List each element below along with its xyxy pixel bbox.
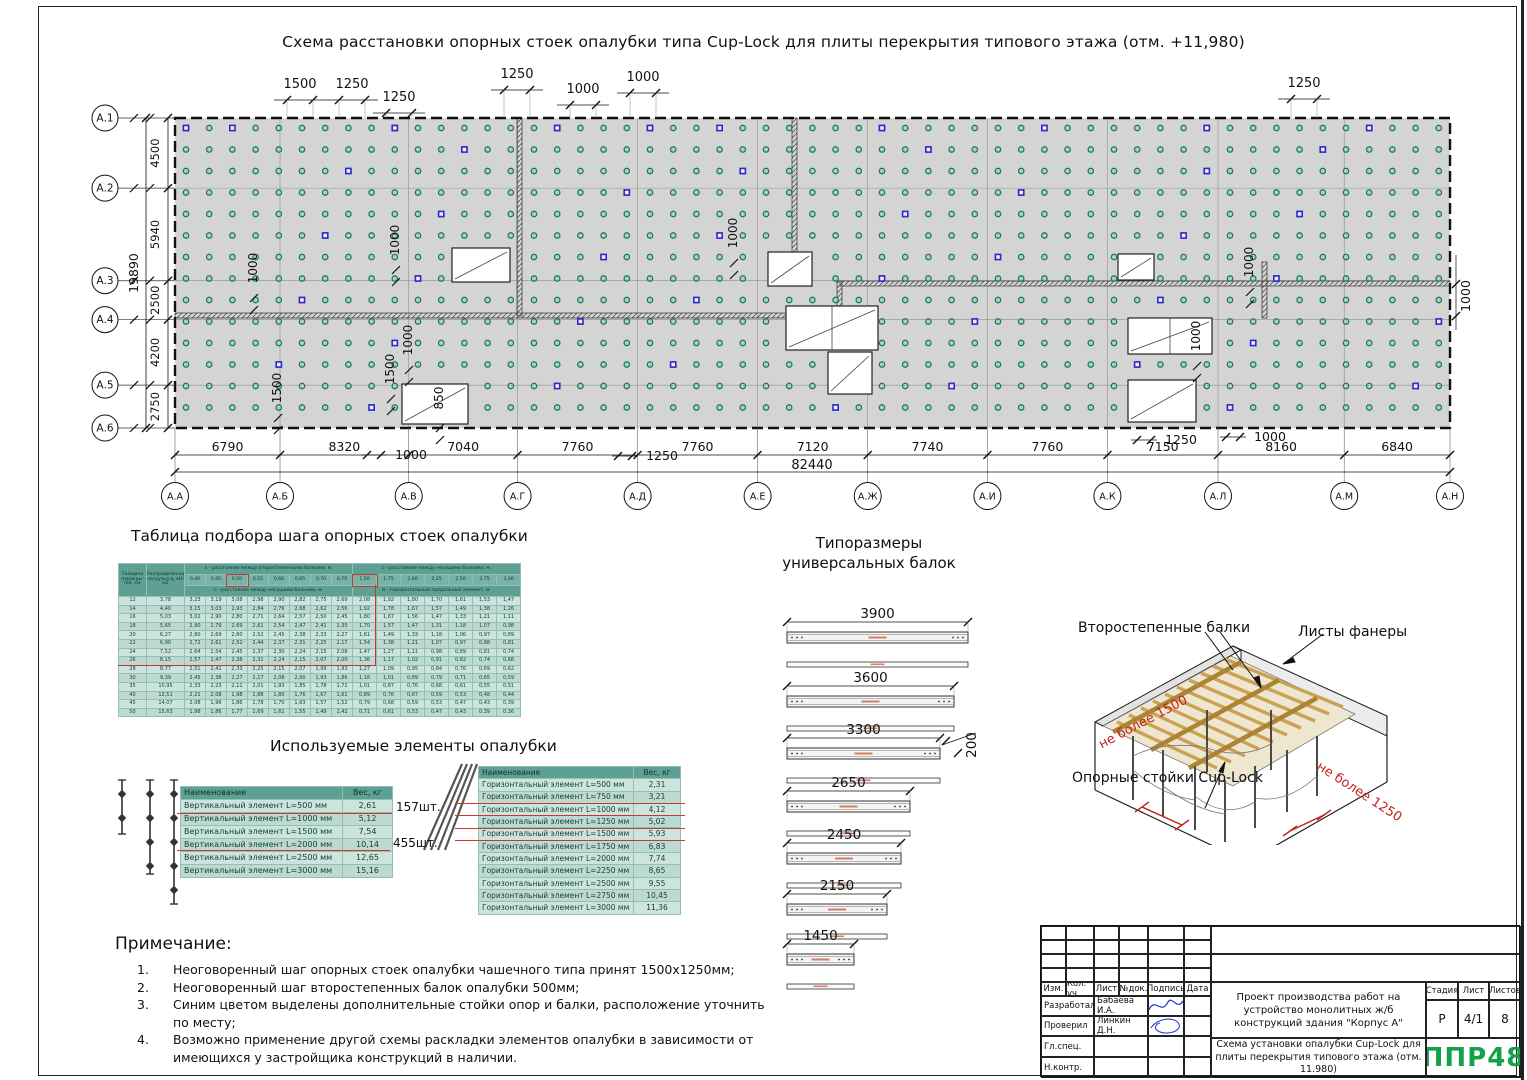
- support-dot: [1320, 362, 1325, 367]
- support-dot: [647, 340, 652, 345]
- support-dot: [276, 190, 281, 195]
- extra-support-marker: [369, 405, 374, 410]
- support-dot: [462, 211, 467, 216]
- support-dot: [903, 383, 908, 388]
- beam-marking: [840, 806, 858, 808]
- tb-sheets-label: Листов: [1489, 982, 1521, 1000]
- support-dot: [1181, 254, 1186, 259]
- support-dot: [601, 362, 606, 367]
- support-dot: [1343, 340, 1348, 345]
- svg-text:1500: 1500: [383, 354, 397, 385]
- support-dot: [183, 190, 188, 195]
- svg-text:1500: 1500: [283, 77, 316, 92]
- support-dot: [1204, 383, 1209, 388]
- revision-cell: [1184, 926, 1211, 940]
- support-dot: [439, 147, 444, 152]
- support-dot: [1135, 190, 1140, 195]
- support-dot: [717, 297, 722, 302]
- support-dot: [763, 340, 768, 345]
- revision-cell: [1184, 954, 1211, 968]
- support-dot: [555, 340, 560, 345]
- support-dot: [949, 147, 954, 152]
- support-dot: [439, 125, 444, 130]
- support-dot: [1251, 147, 1256, 152]
- support-dot: [1367, 297, 1372, 302]
- support-dot: [253, 125, 258, 130]
- support-dot: [926, 125, 931, 130]
- support-dot: [624, 340, 629, 345]
- support-dot: [1065, 190, 1070, 195]
- support-dot: [369, 211, 374, 216]
- tb-stage-label: Стадия: [1426, 982, 1458, 1000]
- support-dot: [671, 276, 676, 281]
- vertical-elements-table: НаименованиеВес, кгВертикальный элемент …: [180, 786, 393, 878]
- extra-support-marker: [647, 125, 652, 130]
- support-dot: [763, 405, 768, 410]
- support-dot: [740, 254, 745, 259]
- support-dot: [230, 147, 235, 152]
- support-dot: [276, 297, 281, 302]
- support-dot: [1181, 276, 1186, 281]
- support-dot: [1413, 147, 1418, 152]
- support-dot: [1042, 297, 1047, 302]
- support-dot: [856, 254, 861, 259]
- support-dot: [694, 276, 699, 281]
- support-dot: [230, 297, 235, 302]
- notes-block: Примечание: 1.Неоговоренный шаг опорных …: [115, 934, 775, 1066]
- label-posts: Опорные стойки Cup-Lock: [1072, 770, 1263, 786]
- support-dot: [369, 276, 374, 281]
- svg-text:2750: 2750: [148, 392, 162, 421]
- support-dot: [694, 125, 699, 130]
- support-dot: [694, 383, 699, 388]
- support-dot: [531, 211, 536, 216]
- extra-support-marker: [671, 362, 676, 367]
- support-dot: [995, 190, 1000, 195]
- support-dot: [926, 254, 931, 259]
- label-plywood: Листы фанеры: [1298, 624, 1407, 640]
- support-dot: [787, 383, 792, 388]
- support-dot: [647, 190, 652, 195]
- note-text: Неоговоренный шаг опорных стоек опалубки…: [173, 961, 775, 979]
- support-dot: [485, 405, 490, 410]
- step-table-header: Толщина перекры- тия, см.: [119, 564, 147, 597]
- svg-text:3900: 3900: [860, 606, 894, 622]
- support-dot: [1367, 147, 1372, 152]
- svg-text:А.Д: А.Д: [629, 492, 646, 503]
- support-dot: [1204, 276, 1209, 281]
- svg-text:850: 850: [432, 387, 446, 410]
- svg-text:1000: 1000: [1242, 247, 1256, 278]
- support-dot: [1019, 147, 1024, 152]
- step-table-header: 0,75: [332, 575, 353, 586]
- support-dot: [207, 254, 212, 259]
- support-dot: [763, 190, 768, 195]
- step-selection-table: Толщина перекры- тия, см.Распределенная …: [118, 563, 521, 717]
- support-dot: [787, 125, 792, 130]
- support-dot: [1390, 233, 1395, 238]
- support-dot: [1367, 276, 1372, 281]
- support-dot: [1297, 233, 1302, 238]
- support-dot: [1065, 383, 1070, 388]
- support-dot: [578, 340, 583, 345]
- support-dot: [1343, 362, 1348, 367]
- support-dot: [810, 297, 815, 302]
- svg-text:А.А: А.А: [167, 492, 184, 503]
- support-dot: [787, 211, 792, 216]
- support-dot: [995, 362, 1000, 367]
- support-dot: [392, 168, 397, 173]
- support-dot: [647, 211, 652, 216]
- svg-text:1000: 1000: [246, 253, 260, 284]
- support-dot: [879, 233, 884, 238]
- support-dot: [531, 297, 536, 302]
- support-dot: [207, 190, 212, 195]
- support-dot: [439, 168, 444, 173]
- support-dot: [578, 297, 583, 302]
- extra-support-marker: [949, 383, 954, 388]
- support-dot: [1390, 383, 1395, 388]
- support-dot: [485, 168, 490, 173]
- support-dot: [903, 340, 908, 345]
- support-dot: [1065, 254, 1070, 259]
- support-dot: [1343, 405, 1348, 410]
- support-dot: [323, 211, 328, 216]
- svg-text:3300: 3300: [846, 722, 880, 738]
- support-dot: [1413, 405, 1418, 410]
- extra-support-marker: [1274, 276, 1279, 281]
- slab-opening: [1118, 254, 1154, 280]
- support-dot: [253, 190, 258, 195]
- note-number: 1.: [115, 961, 173, 979]
- support-dot: [1181, 147, 1186, 152]
- support-dot: [299, 233, 304, 238]
- support-dot: [1135, 147, 1140, 152]
- note-item: 2.Неоговоренный шаг второстепенных балок…: [115, 979, 775, 997]
- svg-text:4500: 4500: [148, 138, 162, 167]
- wall-hatch: [175, 313, 840, 318]
- support-dot: [810, 168, 815, 173]
- revision-cell: [1119, 940, 1148, 954]
- support-dot: [1343, 319, 1348, 324]
- support-dot: [1297, 405, 1302, 410]
- support-dot: [1297, 168, 1302, 173]
- step-table: Толщина перекры- тия, см.Распределенная …: [118, 563, 520, 718]
- support-dot: [1042, 254, 1047, 259]
- element-row: Горизонтальный элемент L=1250 мм5,02: [479, 816, 681, 828]
- support-dot: [183, 211, 188, 216]
- support-dot: [462, 362, 467, 367]
- extra-support-marker: [1158, 297, 1163, 302]
- tb-date-cell: [1184, 1036, 1211, 1057]
- support-dot: [1204, 147, 1209, 152]
- support-dot: [1227, 233, 1232, 238]
- support-dot: [1111, 276, 1116, 281]
- support-dot: [856, 168, 861, 173]
- support-dot: [1274, 254, 1279, 259]
- beam-size-item: 3900: [783, 606, 972, 667]
- support-dot: [1413, 125, 1418, 130]
- support-dot: [740, 340, 745, 345]
- support-dot: [323, 276, 328, 281]
- tb-person: Бабаева И.А.: [1094, 996, 1148, 1016]
- step-table-header: 0,60: [269, 575, 290, 586]
- support-dot: [369, 190, 374, 195]
- support-dot: [671, 297, 676, 302]
- extra-support-marker: [1413, 383, 1418, 388]
- support-dot: [647, 362, 652, 367]
- support-dot: [323, 297, 328, 302]
- support-dot: [879, 211, 884, 216]
- support-dot: [462, 190, 467, 195]
- support-dot: [253, 405, 258, 410]
- svg-text:1000: 1000: [388, 225, 402, 256]
- support-dot: [230, 190, 235, 195]
- support-dot: [508, 168, 513, 173]
- support-dot: [995, 147, 1000, 152]
- support-dot: [1135, 233, 1140, 238]
- step-table-header: 0,70: [311, 575, 332, 586]
- note-number: 4.: [115, 1031, 173, 1066]
- support-dot: [740, 383, 745, 388]
- support-dot: [207, 168, 212, 173]
- svg-text:1250: 1250: [646, 448, 678, 463]
- support-dot: [995, 233, 1000, 238]
- svg-text:1000: 1000: [1254, 429, 1286, 444]
- support-dot: [694, 147, 699, 152]
- support-dot: [1343, 211, 1348, 216]
- extra-support-marker: [439, 211, 444, 216]
- support-dot: [879, 405, 884, 410]
- support-dot: [508, 319, 513, 324]
- support-dot: [555, 147, 560, 152]
- support-dot: [1320, 254, 1325, 259]
- support-dot: [1251, 405, 1256, 410]
- support-dot: [601, 340, 606, 345]
- support-dot: [949, 319, 954, 324]
- extra-support-marker: [833, 405, 838, 410]
- support-dot: [323, 383, 328, 388]
- element-row: Горизонтальный элемент L=2500 мм9,55: [479, 877, 681, 889]
- support-dot: [810, 362, 815, 367]
- support-dot: [624, 211, 629, 216]
- extra-support-marker: [1204, 125, 1209, 130]
- support-dot: [647, 319, 652, 324]
- support-dot: [415, 233, 420, 238]
- support-dot: [253, 383, 258, 388]
- support-dot: [856, 211, 861, 216]
- svg-text:А.К: А.К: [1099, 492, 1116, 503]
- support-dot: [415, 147, 420, 152]
- support-dot: [230, 383, 235, 388]
- support-dot: [531, 254, 536, 259]
- support-dot: [183, 147, 188, 152]
- support-dot: [717, 168, 722, 173]
- support-dot: [323, 254, 328, 259]
- support-dot: [207, 319, 212, 324]
- support-dot: [1413, 340, 1418, 345]
- extra-support-marker: [555, 125, 560, 130]
- svg-text:1000: 1000: [1189, 321, 1203, 352]
- support-dot: [1065, 125, 1070, 130]
- support-dot: [903, 190, 908, 195]
- support-dot: [462, 168, 467, 173]
- support-dot: [763, 297, 768, 302]
- support-dot: [392, 319, 397, 324]
- support-dot: [1413, 190, 1418, 195]
- support-dot: [1111, 319, 1116, 324]
- support-dot: [230, 233, 235, 238]
- support-dot: [717, 405, 722, 410]
- support-dot: [299, 319, 304, 324]
- support-dot: [903, 319, 908, 324]
- support-dot: [1274, 211, 1279, 216]
- extra-support-marker: [903, 211, 908, 216]
- extra-support-marker: [276, 362, 281, 367]
- extra-support-marker: [462, 147, 467, 152]
- support-dot: [949, 211, 954, 216]
- extra-support-marker: [879, 125, 884, 130]
- support-dot: [1320, 383, 1325, 388]
- support-dot: [1436, 233, 1441, 238]
- tb-person: [1094, 1057, 1148, 1078]
- support-dot: [1227, 254, 1232, 259]
- step-table-row: 4514,072,081,961,861,781,701,631,571,520…: [119, 700, 521, 709]
- support-dot: [601, 211, 606, 216]
- support-dot: [1065, 211, 1070, 216]
- tb-band: [1211, 926, 1521, 954]
- tb-signature-cell: [1148, 1057, 1184, 1078]
- support-dot: [879, 362, 884, 367]
- note-text: Неоговоренный шаг второстепенных балок о…: [173, 979, 775, 997]
- support-dot: [346, 297, 351, 302]
- support-dot: [183, 233, 188, 238]
- support-dot: [1065, 340, 1070, 345]
- support-dot: [346, 340, 351, 345]
- support-dot: [694, 168, 699, 173]
- support-dot: [624, 362, 629, 367]
- red-highlight: [375, 585, 376, 665]
- support-dot: [1019, 383, 1024, 388]
- revision-cell: [1119, 968, 1148, 982]
- support-dot: [810, 405, 815, 410]
- support-dot: [1297, 254, 1302, 259]
- support-dot: [1181, 211, 1186, 216]
- element-row: Горизонтальный элемент L=1000 мм4,12: [479, 803, 681, 815]
- support-dot: [1019, 405, 1024, 410]
- extra-support-marker: [1042, 125, 1047, 130]
- support-dot: [624, 383, 629, 388]
- support-dot: [276, 147, 281, 152]
- support-dot: [1367, 168, 1372, 173]
- support-dot: [183, 254, 188, 259]
- support-dot: [601, 405, 606, 410]
- support-dot: [276, 168, 281, 173]
- support-dot: [1158, 168, 1163, 173]
- count-label-1: 157шт.: [396, 800, 441, 814]
- tb-sheets-value: 8: [1489, 1000, 1521, 1038]
- support-dot: [1158, 125, 1163, 130]
- support-dot: [763, 362, 768, 367]
- support-dot: [230, 319, 235, 324]
- support-dot: [740, 319, 745, 324]
- support-dot: [183, 297, 188, 302]
- extra-support-marker: [1181, 233, 1186, 238]
- support-dot: [276, 319, 281, 324]
- support-dot: [1390, 276, 1395, 281]
- support-dot: [531, 125, 536, 130]
- support-dot: [601, 297, 606, 302]
- support-dot: [1042, 383, 1047, 388]
- support-dot: [323, 319, 328, 324]
- svg-text:1250: 1250: [1165, 432, 1197, 447]
- support-dot: [1042, 190, 1047, 195]
- support-dot: [903, 276, 908, 281]
- support-dot: [694, 362, 699, 367]
- support-dot: [508, 362, 513, 367]
- support-dot: [230, 405, 235, 410]
- support-dot: [531, 383, 536, 388]
- support-dot: [1436, 340, 1441, 345]
- red-underline-1: [177, 813, 392, 814]
- extra-support-marker: [183, 125, 188, 130]
- support-dot: [601, 319, 606, 324]
- svg-text:А.М: А.М: [1335, 492, 1353, 503]
- step-table-header: 0,55: [248, 575, 269, 586]
- svg-text:2650: 2650: [831, 775, 865, 791]
- support-dot: [1181, 190, 1186, 195]
- step-table-header: 1,75: [377, 575, 401, 586]
- support-dot: [1413, 276, 1418, 281]
- support-dot: [1436, 383, 1441, 388]
- revision-cell: [1041, 926, 1066, 940]
- support-dot: [369, 383, 374, 388]
- support-dot: [578, 362, 583, 367]
- support-dot: [763, 319, 768, 324]
- support-dot: [1227, 319, 1232, 324]
- support-dot: [1111, 125, 1116, 130]
- support-dot: [323, 340, 328, 345]
- svg-text:2150: 2150: [820, 878, 854, 894]
- support-dot: [369, 168, 374, 173]
- support-dot: [462, 340, 467, 345]
- support-dot: [949, 276, 954, 281]
- support-dot: [1390, 211, 1395, 216]
- support-dot: [647, 276, 652, 281]
- support-dot: [1088, 297, 1093, 302]
- support-dot: [810, 383, 815, 388]
- support-dot: [972, 276, 977, 281]
- support-dot: [369, 233, 374, 238]
- support-dot: [647, 383, 652, 388]
- support-dot: [1367, 340, 1372, 345]
- support-dot: [1251, 383, 1256, 388]
- support-dot: [485, 319, 490, 324]
- support-dot: [508, 340, 513, 345]
- support-dot: [647, 147, 652, 152]
- extra-support-marker: [346, 168, 351, 173]
- support-dot: [392, 297, 397, 302]
- support-dot: [415, 362, 420, 367]
- support-dot: [1390, 190, 1395, 195]
- support-dot: [1413, 168, 1418, 173]
- support-dot: [1088, 276, 1093, 281]
- support-dot: [1320, 190, 1325, 195]
- support-dot: [578, 190, 583, 195]
- support-dot: [1181, 297, 1186, 302]
- svg-text:7040: 7040: [447, 439, 479, 454]
- support-dot: [1390, 340, 1395, 345]
